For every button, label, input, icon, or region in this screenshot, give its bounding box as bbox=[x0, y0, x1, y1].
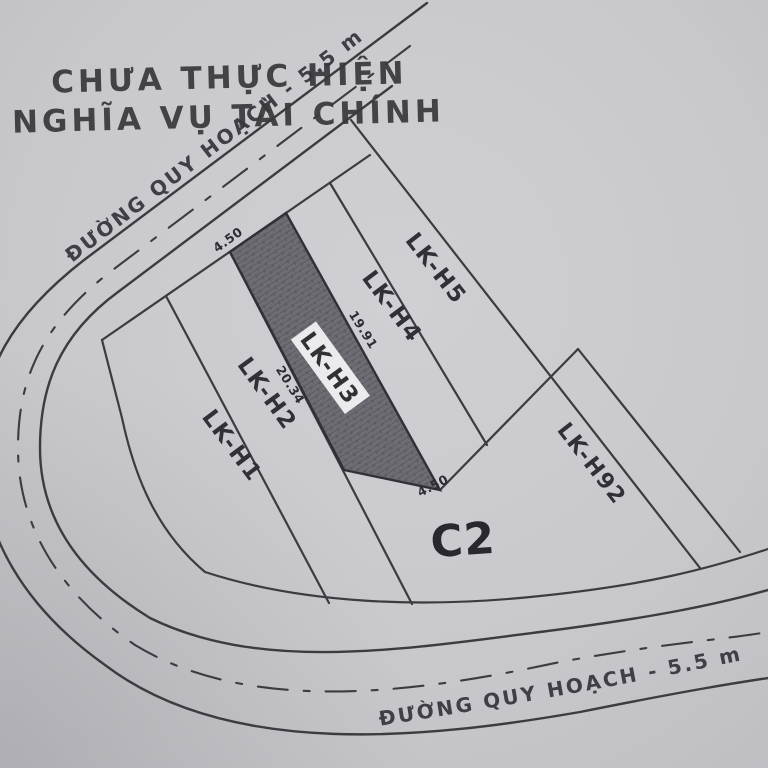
area-label-c2: C2 bbox=[429, 513, 497, 568]
scanned-cadastral-map: ĐƯỜNG QUY HOẠCH - 5.5 m ĐƯỜNG QUY HOẠCH … bbox=[0, 0, 768, 768]
map-canvas: ĐƯỜNG QUY HOẠCH - 5.5 m ĐƯỜNG QUY HOẠCH … bbox=[0, 0, 768, 768]
